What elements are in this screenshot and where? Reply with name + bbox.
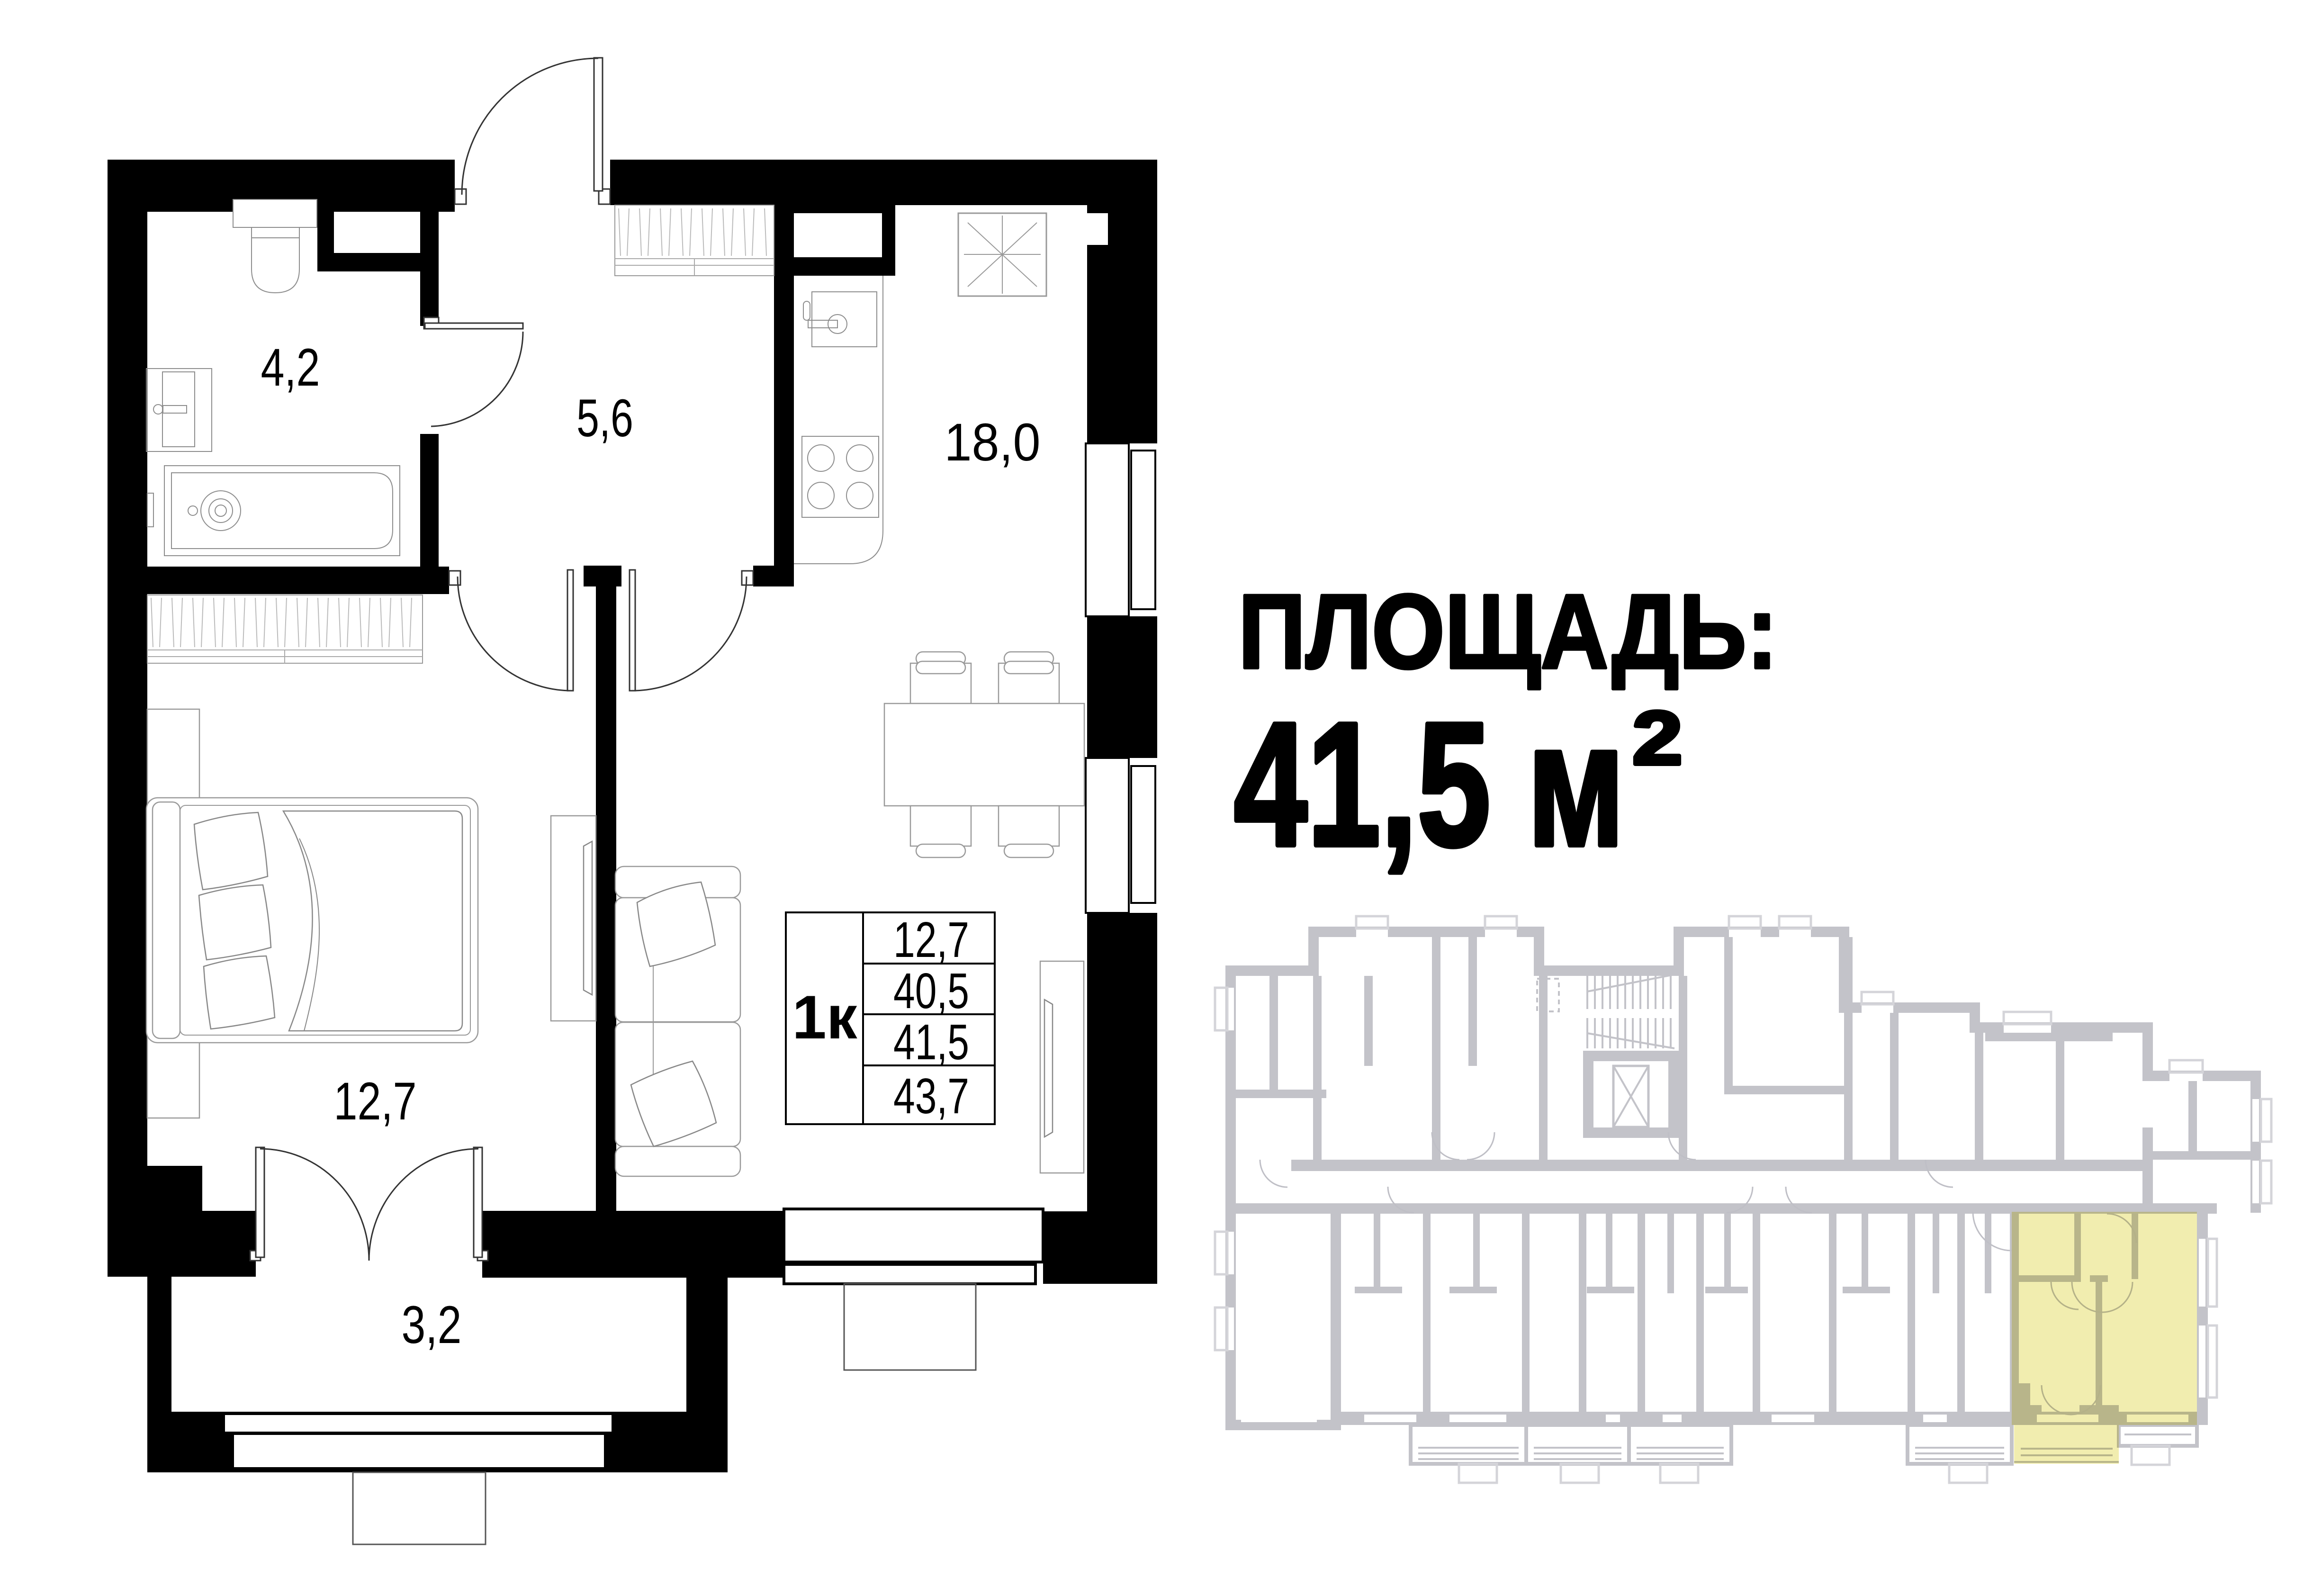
svg-text:3,2: 3,2	[402, 1295, 462, 1354]
svg-text:4,2: 4,2	[261, 338, 320, 397]
svg-text:18,0: 18,0	[945, 413, 1041, 472]
svg-text:12,7: 12,7	[334, 1072, 417, 1131]
svg-text:40,5: 40,5	[893, 963, 969, 1019]
svg-text:41,5 м: 41,5 м	[1234, 685, 1625, 883]
svg-text:ПЛОЩАДЬ:: ПЛОЩАДЬ:	[1238, 573, 1778, 691]
svg-text:43,7: 43,7	[893, 1068, 969, 1124]
svg-text:1к: 1к	[792, 983, 857, 1052]
svg-text:5,6: 5,6	[576, 388, 633, 448]
svg-text:2: 2	[1632, 695, 1683, 780]
svg-text:41,5: 41,5	[893, 1014, 969, 1070]
svg-text:12,7: 12,7	[893, 912, 969, 968]
